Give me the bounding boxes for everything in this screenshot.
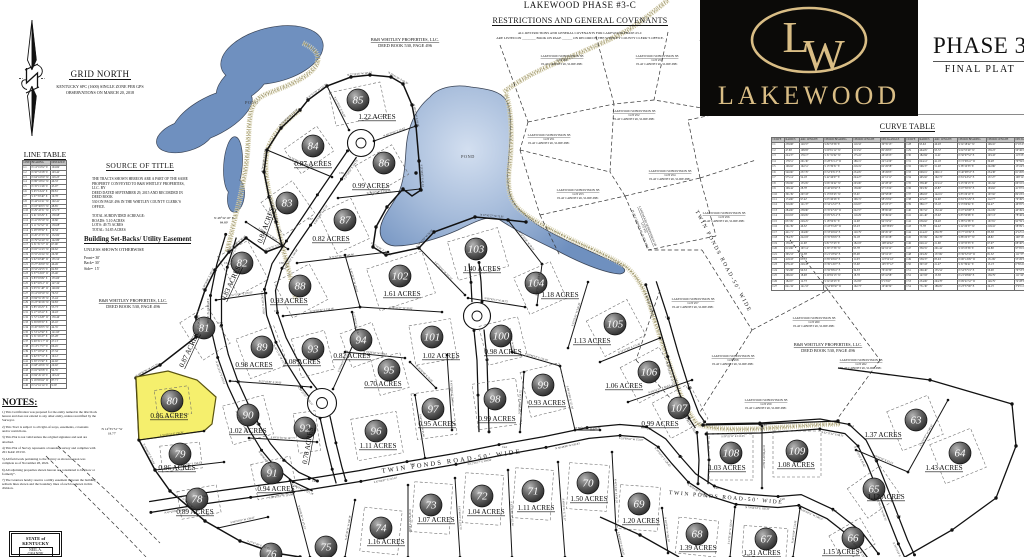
svg-text:S 55°22′43″ W 240.28′: S 55°22′43″ W 240.28′ — [571, 302, 581, 327]
svg-text:C59: C59 — [274, 310, 279, 313]
svg-text:C45: C45 — [590, 429, 595, 432]
svg-text:109: 109 — [789, 446, 806, 458]
svg-text:S 78°31′37″ W 35.82′: S 78°31′37″ W 35.82′ — [389, 306, 413, 310]
svg-text:94: 94 — [356, 335, 368, 347]
svg-text:73: 73 — [426, 500, 438, 512]
svg-text:PLAT CABINET #6, SLIDE #881: PLAT CABINET #6, SLIDE #881 — [840, 366, 882, 371]
svg-text:C54: C54 — [256, 423, 261, 426]
svg-text:0.82 ACRES: 0.82 ACRES — [312, 235, 349, 243]
svg-text:18.77′: 18.77′ — [108, 432, 117, 436]
svg-text:C61: C61 — [665, 316, 670, 319]
svg-text:C43: C43 — [410, 463, 415, 466]
svg-text:74: 74 — [376, 523, 388, 535]
svg-text:67: 67 — [761, 534, 773, 546]
svg-text:1.11 ACRES: 1.11 ACRES — [360, 442, 397, 450]
svg-text:1.31 ACRES: 1.31 ACRES — [743, 549, 780, 557]
svg-text:N 79°54′14″ E 102.31′: N 79°54′14″ E 102.31′ — [745, 506, 770, 511]
svg-text:C47: C47 — [678, 456, 683, 459]
svg-text:S 18°44′54″ E 125.03′: S 18°44′54″ E 125.03′ — [525, 353, 549, 363]
svg-text:90: 90 — [243, 410, 255, 422]
svg-text:71: 71 — [528, 486, 539, 498]
svg-text:C62: C62 — [686, 386, 691, 389]
svg-text:70: 70 — [583, 478, 595, 490]
svg-text:1.15 ACRES: 1.15 ACRES — [822, 548, 859, 556]
svg-text:C41: C41 — [202, 495, 207, 498]
svg-text:1.37 ACRES: 1.37 ACRES — [864, 431, 901, 439]
svg-text:0.98 ACRES: 0.98 ACRES — [235, 361, 272, 369]
svg-text:1.61 ACRES: 1.61 ACRES — [383, 290, 420, 298]
svg-text:1.50 ACRES: 1.50 ACRES — [570, 495, 607, 503]
svg-text:N 80°24′09″ W 239.76′: N 80°24′09″ W 239.76′ — [575, 427, 601, 430]
svg-text:0.99 ACRES: 0.99 ACRES — [478, 415, 515, 423]
svg-text:105: 105 — [607, 319, 624, 331]
svg-text:S 67°04′07″ E 215.47′: S 67°04′07″ E 215.47′ — [374, 477, 399, 485]
svg-text:C52: C52 — [218, 322, 223, 325]
svg-text:C64: C64 — [849, 425, 854, 428]
svg-text:N 48°32′19″ E: N 48°32′19″ E — [214, 216, 234, 220]
svg-text:1.16 ACRES: 1.16 ACRES — [367, 538, 404, 546]
svg-text:1.07 ACRES: 1.07 ACRES — [417, 516, 454, 524]
svg-text:N 14°35′51″ W: N 14°35′51″ W — [102, 427, 124, 431]
svg-text:0.86 ACRES: 0.86 ACRES — [150, 412, 187, 420]
svg-text:S 21°25′41″ E 36.66′: S 21°25′41″ E 36.66′ — [333, 96, 346, 118]
svg-text:C49: C49 — [780, 498, 785, 501]
svg-text:0.99 ACRES: 0.99 ACRES — [641, 420, 678, 428]
svg-text:0.93 ACRES: 0.93 ACRES — [528, 399, 565, 407]
svg-text:C60: C60 — [295, 359, 300, 362]
svg-text:S 67°34′51″ W 90.78′: S 67°34′51″ W 90.78′ — [196, 315, 199, 339]
svg-text:1.13 ACRES: 1.13 ACRES — [573, 337, 610, 345]
svg-text:N 62°17′32″ E 99.71′: N 62°17′32″ E 99.71′ — [821, 431, 845, 438]
svg-text:N 71°07′36″ W 148.86′: N 71°07′36″ W 148.86′ — [329, 253, 355, 259]
svg-text:1.06 ACRES: 1.06 ACRES — [605, 382, 642, 390]
svg-text:C66: C66 — [896, 515, 901, 518]
svg-text:87: 87 — [340, 215, 352, 227]
svg-text:N 48°37′03″ E 28.62′: N 48°37′03″ E 28.62′ — [383, 127, 406, 138]
svg-text:LAKEWOOD: LAKEWOOD — [718, 81, 900, 110]
svg-text:C53: C53 — [235, 380, 240, 383]
svg-text:63: 63 — [911, 415, 923, 427]
svg-text:DEED BOOK 530, PAGE 496: DEED BOOK 530, PAGE 496 — [106, 304, 161, 310]
svg-text:C57: C57 — [308, 218, 313, 221]
svg-text:W: W — [803, 31, 845, 80]
svg-text:C44: C44 — [502, 446, 507, 449]
svg-text:103: 103 — [468, 244, 485, 256]
svg-text:76: 76 — [266, 549, 278, 557]
svg-text:101: 101 — [424, 332, 441, 344]
svg-text:S 69°48′13″ W 131.31′: S 69°48′13″ W 131.31′ — [206, 299, 209, 324]
svg-text:1.43 ACRES: 1.43 ACRES — [925, 464, 962, 472]
svg-text:96: 96 — [371, 426, 383, 438]
svg-text:S 27°53′56″ E 124.75′: S 27°53′56″ E 124.75′ — [343, 159, 359, 181]
svg-text:100: 100 — [493, 331, 510, 343]
svg-text:PLAT CABINET #6, SLIDE #881: PLAT CABINET #6, SLIDE #881 — [613, 117, 655, 122]
svg-text:PLAT CABINET #6, SLIDE #881: PLAT CABINET #6, SLIDE #881 — [745, 406, 787, 411]
svg-text:C50: C50 — [832, 510, 837, 513]
svg-text:PLAT CABINET #6, SLIDE #881: PLAT CABINET #6, SLIDE #881 — [793, 324, 835, 329]
svg-text:PLAT CABINET #6, SLIDE #881: PLAT CABINET #6, SLIDE #881 — [528, 141, 570, 146]
svg-text:69: 69 — [634, 499, 646, 511]
svg-text:POND: POND — [461, 154, 475, 159]
svg-text:106: 106 — [641, 367, 658, 379]
svg-text:1.12 ACRES: 1.12 ACRES — [867, 493, 904, 501]
svg-text:C55: C55 — [282, 460, 287, 463]
svg-text:C46: C46 — [647, 428, 652, 431]
svg-text:N 74°03′39″ E 134.18′: N 74°03′39″ E 134.18′ — [309, 307, 334, 313]
svg-text:1.39 ACRES: 1.39 ACRES — [679, 544, 716, 552]
svg-text:84.89′: 84.89′ — [220, 221, 229, 225]
svg-text:93: 93 — [308, 344, 320, 356]
svg-text:N 70°06′23″ E 36.17′: N 70°06′23″ E 36.17′ — [762, 445, 765, 468]
svg-text:C63: C63 — [762, 424, 767, 427]
svg-text:N 47°57′29″ W 122.71′: N 47°57′29″ W 122.71′ — [306, 83, 328, 100]
svg-text:79: 79 — [175, 449, 187, 461]
svg-text:83: 83 — [282, 198, 294, 210]
svg-text:TWIN PONDS ROAD-50′ WIDE: TWIN PONDS ROAD-50′ WIDE — [669, 490, 784, 506]
svg-text:68: 68 — [692, 529, 704, 541]
svg-text:PLAT CABINET #6, SLIDE #881: PLAT CABINET #6, SLIDE #881 — [649, 177, 691, 182]
svg-text:N 64°53′37″ E 80.43′: N 64°53′37″ E 80.43′ — [648, 384, 671, 394]
svg-text:1.08 ACRES: 1.08 ACRES — [283, 358, 320, 366]
svg-text:0.93 ACRES: 0.93 ACRES — [270, 297, 307, 305]
svg-text:80: 80 — [167, 396, 179, 408]
svg-text:DEED BOOK 530, PAGE 496: DEED BOOK 530, PAGE 496 — [378, 43, 433, 49]
svg-text:97: 97 — [428, 404, 440, 416]
svg-text:N 36°30′44″ E 33.95′: N 36°30′44″ E 33.95′ — [415, 365, 434, 384]
svg-text:C58: C58 — [279, 262, 284, 265]
svg-text:86: 86 — [379, 158, 391, 170]
svg-text:89: 89 — [257, 342, 269, 354]
svg-text:PLAT CABINET #6, SLIDE #881: PLAT CABINET #6, SLIDE #881 — [703, 219, 745, 224]
svg-text:N 74°07′14″ E 152.73′: N 74°07′14″ E 152.73′ — [367, 189, 392, 195]
svg-text:84: 84 — [308, 141, 320, 153]
svg-text:85: 85 — [353, 95, 365, 107]
svg-text:0.99 ACRES: 0.99 ACRES — [352, 182, 389, 190]
svg-text:PLAT CABINET #6, SLIDE #881: PLAT CABINET #6, SLIDE #881 — [712, 362, 754, 367]
svg-text:72: 72 — [477, 491, 489, 503]
svg-text:95: 95 — [384, 365, 396, 377]
svg-text:1.08 ACRES: 1.08 ACRES — [777, 461, 814, 469]
svg-text:88: 88 — [295, 281, 307, 293]
svg-text:0.70 ACRES: 0.70 ACRES — [364, 380, 401, 388]
svg-text:S 29°22′11″ E 113.65′: S 29°22′11″ E 113.65′ — [721, 435, 745, 438]
svg-text:99: 99 — [538, 380, 550, 392]
svg-text:98: 98 — [490, 394, 502, 406]
svg-text:N 70°09′33″ E 127.28′: N 70°09′33″ E 127.28′ — [279, 108, 299, 127]
svg-text:S 87°22′01″ W 101.76′: S 87°22′01″ W 101.76′ — [434, 261, 454, 281]
svg-text:S 08°53′08″ E 71.32′: S 08°53′08″ E 71.32′ — [313, 204, 328, 225]
svg-text:N 12°11′09″ E 171.46′: N 12°11′09″ E 171.46′ — [618, 342, 642, 354]
svg-text:N 59°08′26″ E 79.24′: N 59°08′26″ E 79.24′ — [142, 443, 156, 465]
svg-text:DEED BOOK 530, PAGE 496: DEED BOOK 530, PAGE 496 — [801, 348, 856, 354]
svg-text:TWIN PONDS ROAD-50′ WIDE: TWIN PONDS ROAD-50′ WIDE — [381, 448, 522, 475]
svg-text:1.02 ACRES: 1.02 ACRES — [422, 352, 459, 360]
svg-text:108: 108 — [723, 448, 740, 460]
svg-text:64: 64 — [955, 448, 967, 460]
svg-text:PLAT CABINET #6, SLIDE #881: PLAT CABINET #6, SLIDE #881 — [672, 305, 714, 310]
svg-text:107: 107 — [671, 403, 688, 415]
svg-text:1.40 ACRES: 1.40 ACRES — [463, 265, 500, 273]
svg-text:1.04 ACRES: 1.04 ACRES — [467, 508, 504, 516]
svg-text:1.03 ACRES: 1.03 ACRES — [708, 464, 745, 472]
svg-text:1.22 ACRES: 1.22 ACRES — [358, 113, 395, 121]
svg-text:C48: C48 — [714, 487, 719, 490]
svg-text:S 42°29′37″ W 103.16′: S 42°29′37″ W 103.16′ — [349, 268, 359, 293]
svg-text:PLAT CABINET #6, SLIDE #881: PLAT CABINET #6, SLIDE #881 — [636, 62, 678, 67]
svg-text:C56: C56 — [339, 172, 344, 175]
svg-text:102: 102 — [392, 271, 409, 283]
svg-text:N 32°52′25″ E 65.98′: N 32°52′25″ E 65.98′ — [408, 509, 411, 532]
svg-text:0.94 ACRES: 0.94 ACRES — [257, 485, 294, 493]
svg-text:75: 75 — [321, 542, 333, 554]
svg-text:1.20 ACRES: 1.20 ACRES — [622, 517, 659, 525]
svg-text:N 37°03′51″ E 128.05′: N 37°03′51″ E 128.05′ — [654, 447, 672, 468]
svg-text:C42: C42 — [312, 480, 317, 483]
svg-text:C65: C65 — [874, 459, 879, 462]
svg-text:PLAT CABINET #6, SLIDE #881: PLAT CABINET #6, SLIDE #881 — [557, 196, 599, 201]
svg-text:1.11 ACRES: 1.11 ACRES — [518, 504, 555, 512]
svg-text:1.18 ACRES: 1.18 ACRES — [541, 291, 578, 299]
